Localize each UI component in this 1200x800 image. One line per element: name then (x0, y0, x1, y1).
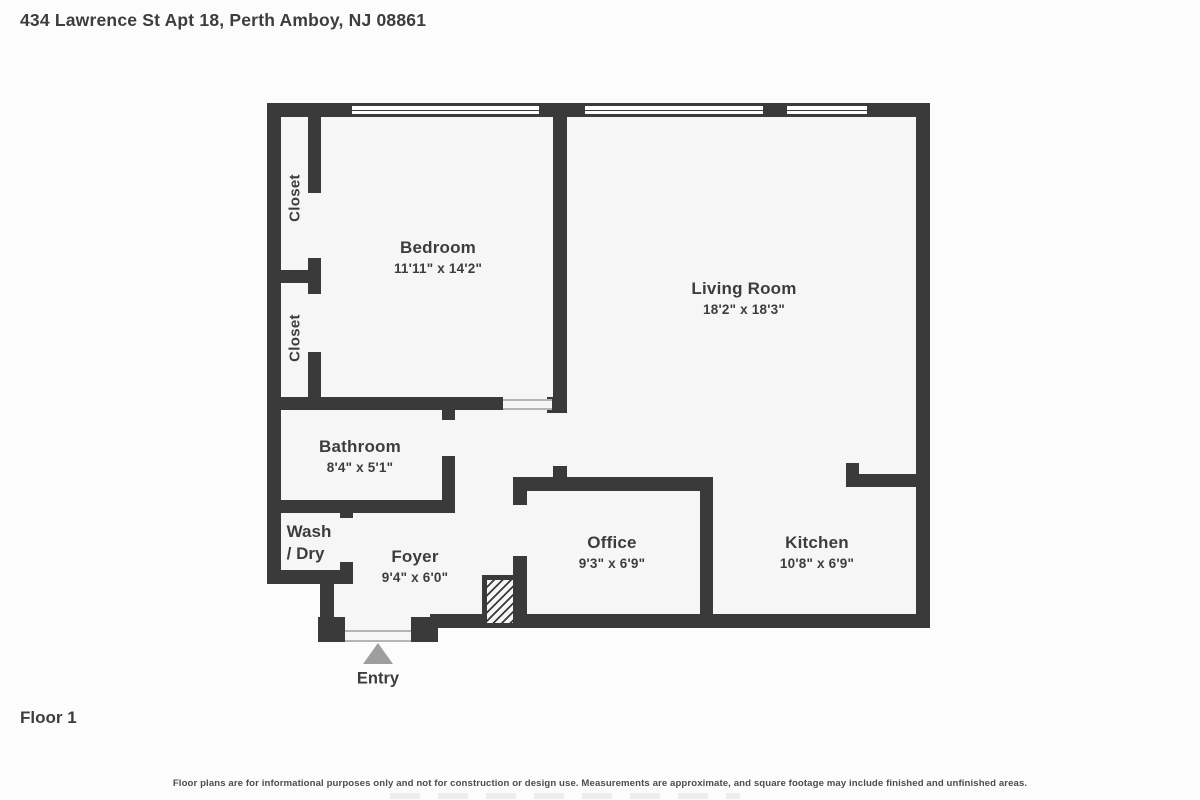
room-label-kitchen: Kitchen 10'8" x 6'9" (780, 533, 854, 571)
disclaimer-text: Floor plans are for informational purpos… (0, 778, 1200, 789)
shaft-hatch (482, 575, 518, 628)
room-label-foyer: Foyer 9'4" x 6'0" (382, 547, 448, 585)
room-label-closet-lower: Closet (287, 314, 304, 362)
window (351, 104, 540, 116)
room-name: Foyer (382, 547, 448, 567)
wall-segment (513, 477, 527, 505)
room-name: Kitchen (780, 533, 854, 553)
room-dims: 10'8" x 6'9" (780, 556, 854, 572)
address-title: 434 Lawrence St Apt 18, Perth Amboy, NJ … (20, 10, 426, 31)
wall-stub (846, 463, 859, 474)
window (786, 104, 868, 116)
room-label-wash-dry: Wash / Dry (287, 521, 332, 565)
wall-stub (553, 466, 567, 477)
wall-segment (267, 500, 455, 513)
room-name: Living Room (691, 279, 796, 299)
room-name: Bathroom (319, 437, 401, 457)
entry-alcove-floor (340, 610, 415, 632)
entry-jamb (411, 617, 438, 642)
room-dims: 11'11" x 14'2" (394, 261, 482, 277)
door-opening (503, 399, 552, 410)
window-pane-line (585, 110, 763, 111)
room-label-bedroom: Bedroom 11'11" x 14'2" (394, 238, 482, 276)
wall-segment (513, 477, 713, 491)
wall-segment (916, 103, 930, 628)
wall-segment (320, 584, 334, 620)
wash-dry-line2: / Dry (287, 543, 332, 565)
room-dims: 9'3" x 6'9" (579, 556, 645, 572)
wall-segment (267, 397, 503, 410)
room-label-office: Office 9'3" x 6'9" (579, 533, 645, 571)
window-pane-line (787, 110, 867, 111)
floor-title: Floor 1 (20, 708, 77, 728)
entry-arrow-icon (363, 643, 393, 664)
window (584, 104, 764, 116)
room-name: Office (579, 533, 645, 553)
room-name: Bedroom (394, 238, 482, 258)
entry-door-opening (345, 630, 411, 642)
wall-segment (553, 103, 567, 413)
wall-segment (442, 410, 455, 420)
entry-jamb (318, 617, 345, 642)
room-dims: 9'4" x 6'0" (382, 570, 448, 586)
wall-segment (340, 500, 353, 518)
wall-segment (700, 477, 713, 628)
wall-segment (340, 562, 353, 584)
cropped-text-fragment (390, 793, 740, 799)
wash-dry-line1: Wash (287, 521, 332, 543)
wall-segment (281, 270, 321, 283)
outside-patch (255, 584, 320, 644)
wall-segment (308, 117, 321, 193)
room-label-closet-upper: Closet (287, 174, 304, 222)
room-dims: 18'2" x 18'3" (691, 302, 796, 318)
room-dims: 8'4" x 5'1" (319, 460, 401, 476)
entry-label: Entry (357, 670, 399, 689)
room-label-bathroom: Bathroom 8'4" x 5'1" (319, 437, 401, 475)
window-pane-line (352, 110, 539, 111)
room-label-living-room: Living Room 18'2" x 18'3" (691, 279, 796, 317)
wall-segment (846, 474, 916, 487)
